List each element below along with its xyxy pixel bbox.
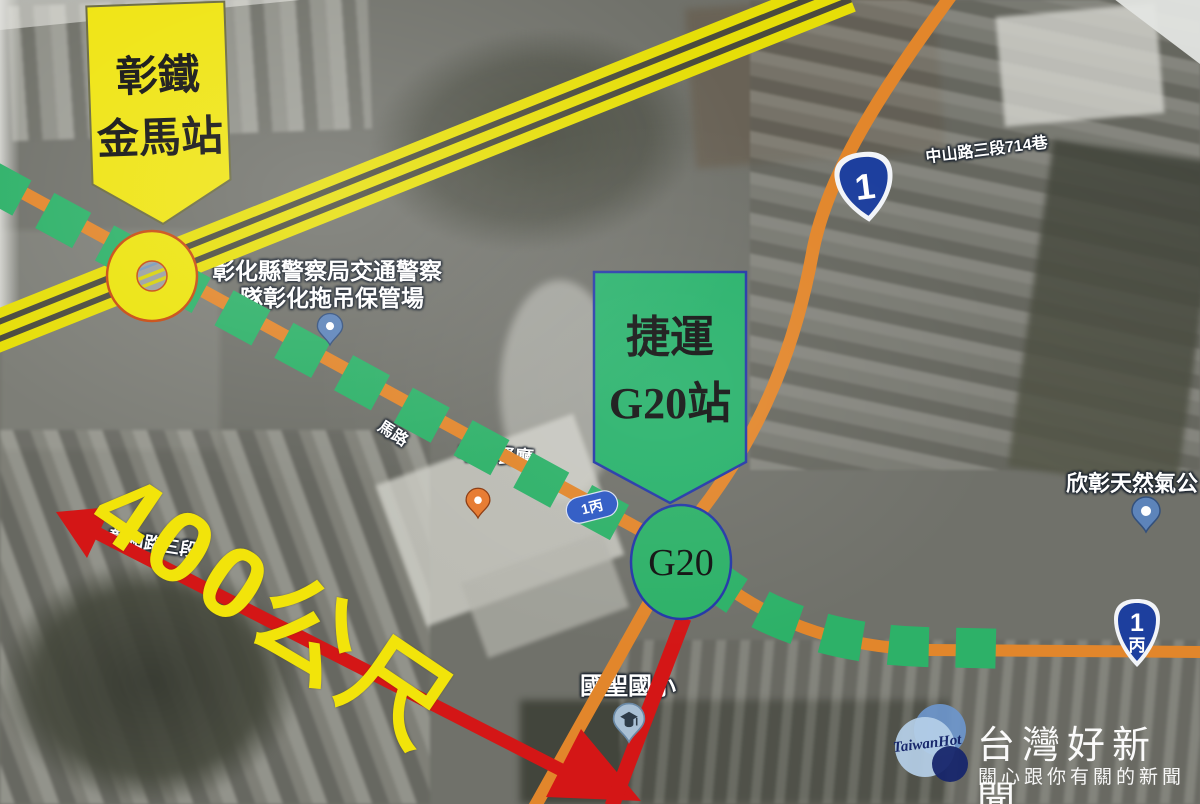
rail-station-ring xyxy=(107,231,197,321)
mrt-station-banner: 捷運 G20站 xyxy=(594,272,746,503)
gas-company-pin-icon xyxy=(1132,497,1160,532)
map-photo: 彰化縣警察局交通警察 隊彰化拖吊保管場 中山路三段714巷 欣彰天然氣公 國聖國… xyxy=(0,0,1200,804)
watermark-site-name: 台灣好新聞 xyxy=(977,714,1200,804)
restaurant-pin-icon xyxy=(466,488,490,518)
news-watermark: TaiwanHot 台灣好新聞 關心跟你有關的新聞 xyxy=(885,690,1200,802)
rail-station-banner: 彰鐵 金馬站 xyxy=(86,2,232,227)
svg-text:G20: G20 xyxy=(648,542,713,584)
watermark-tagline: 關心跟你有關的新聞 xyxy=(978,762,1185,789)
map-overlay-graphics: 1 1 丙 1丙 xyxy=(0,0,1200,804)
svg-text:金馬站: 金馬站 xyxy=(95,112,224,163)
highway-1-shield: 1 xyxy=(832,149,898,226)
g20-station-circle: G20 xyxy=(631,505,731,619)
svg-text:G20站: G20站 xyxy=(609,379,731,428)
svg-text:捷運: 捷運 xyxy=(626,313,714,362)
svg-text:1: 1 xyxy=(1130,609,1144,637)
svg-text:彰鐵: 彰鐵 xyxy=(115,51,201,101)
svg-text:丙: 丙 xyxy=(1129,636,1146,655)
